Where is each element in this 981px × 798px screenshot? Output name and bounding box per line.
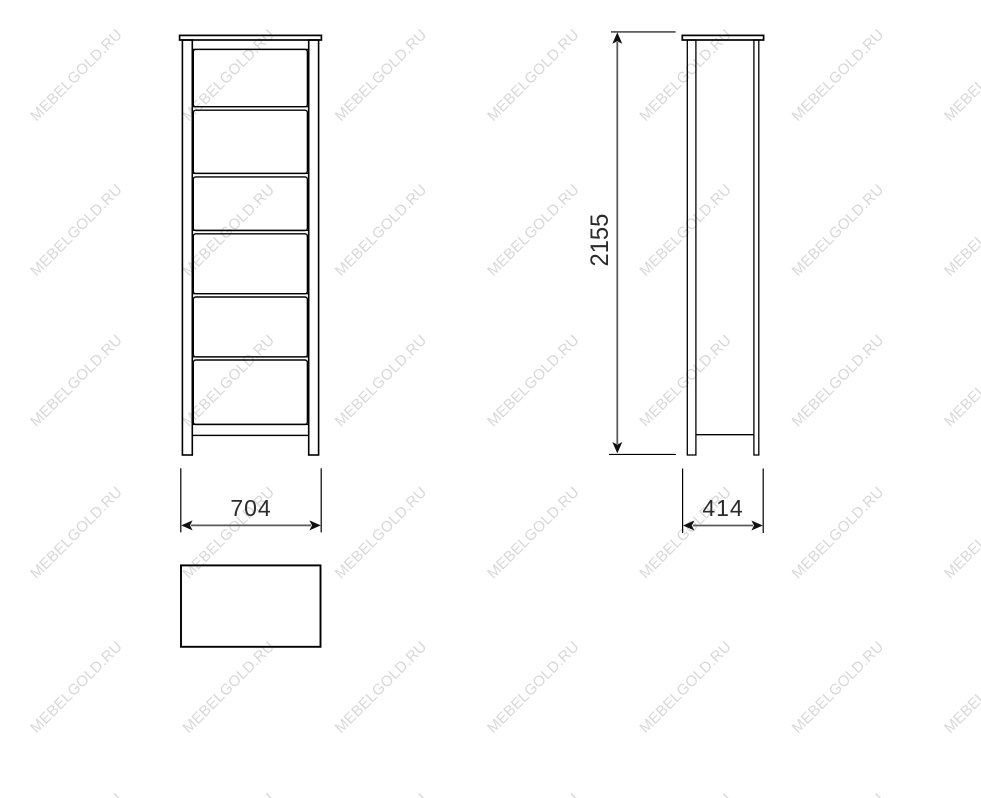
svg-text:704: 704 xyxy=(230,495,271,521)
svg-text:414: 414 xyxy=(702,495,743,521)
svg-text:2155: 2155 xyxy=(586,214,614,267)
